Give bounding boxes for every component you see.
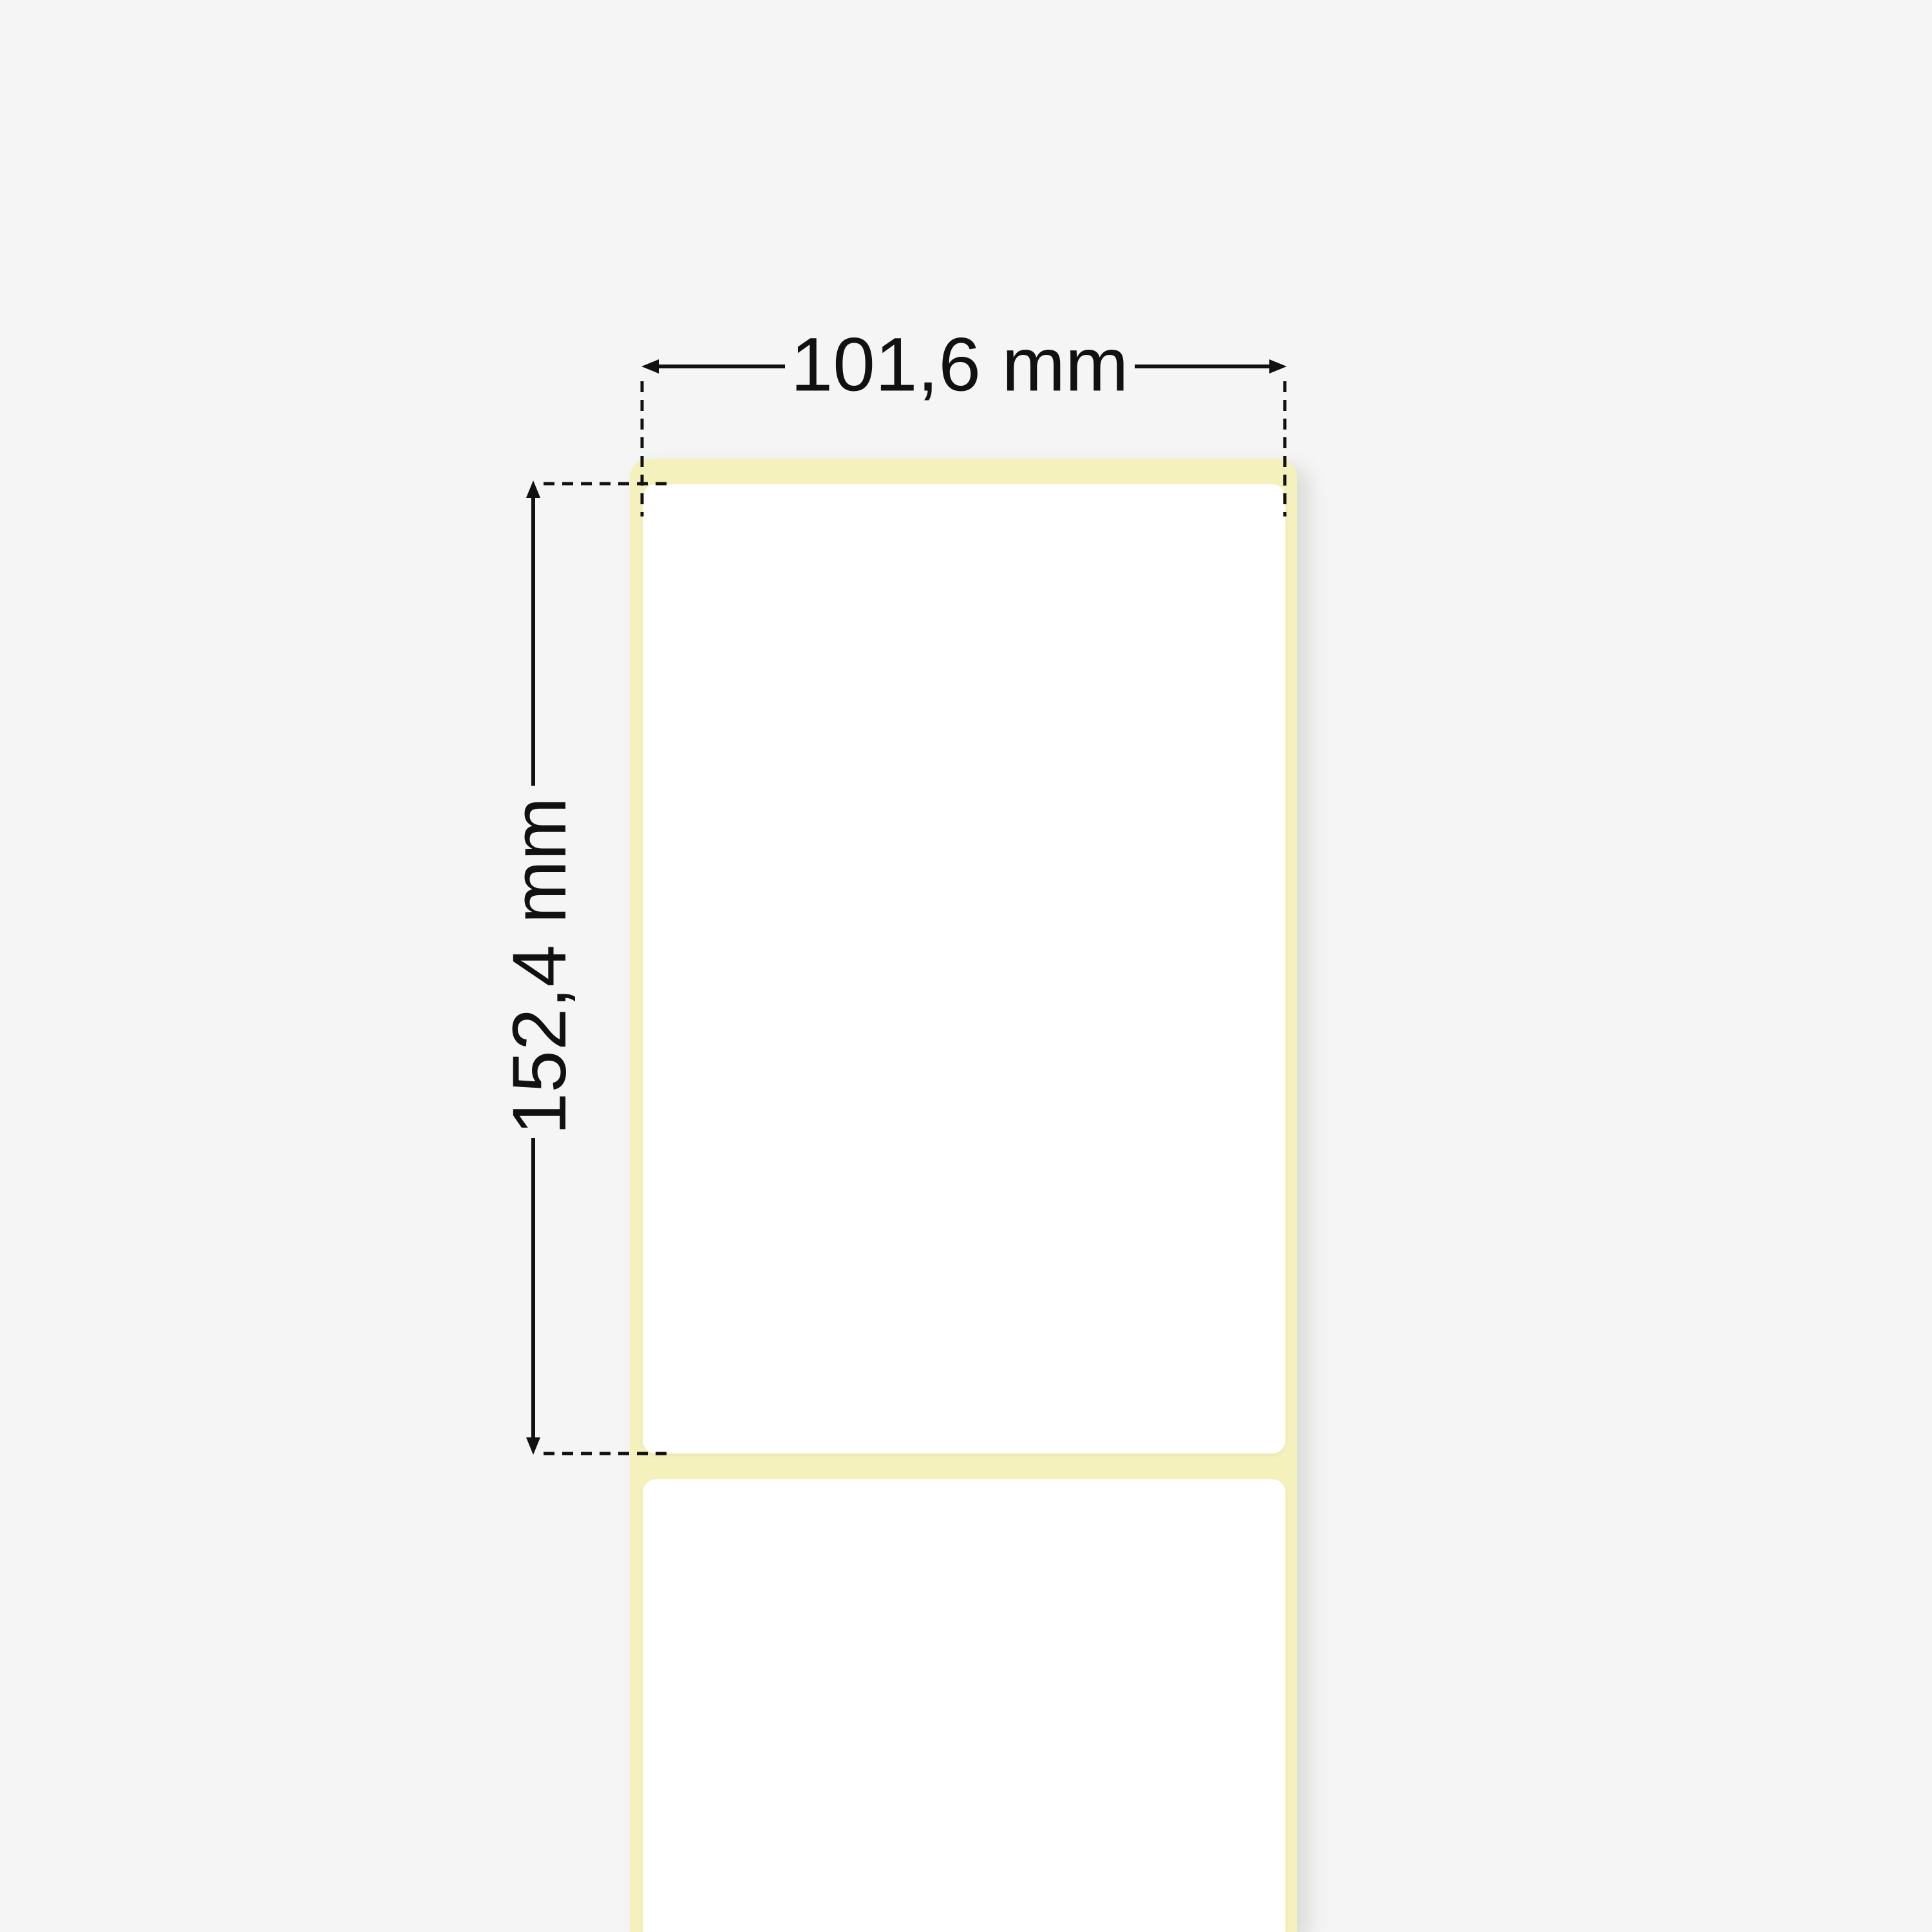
label-blank-1: [643, 484, 1285, 1454]
width-dimension-label: 101,6 mm: [791, 327, 1129, 403]
width-dimension-arrowhead-right: [1269, 359, 1287, 374]
height-dimension-arrowhead-bottom: [526, 1437, 540, 1455]
width-dimension-arrowhead-left: [641, 359, 659, 374]
height-dimension-arrowhead-top: [526, 480, 540, 498]
label-blank-2: [643, 1479, 1285, 1932]
height-dimension-label: 152,4 mm: [502, 797, 578, 1135]
label-roll-diagram: 101,6 mm 152,4 mm: [0, 0, 1932, 1932]
